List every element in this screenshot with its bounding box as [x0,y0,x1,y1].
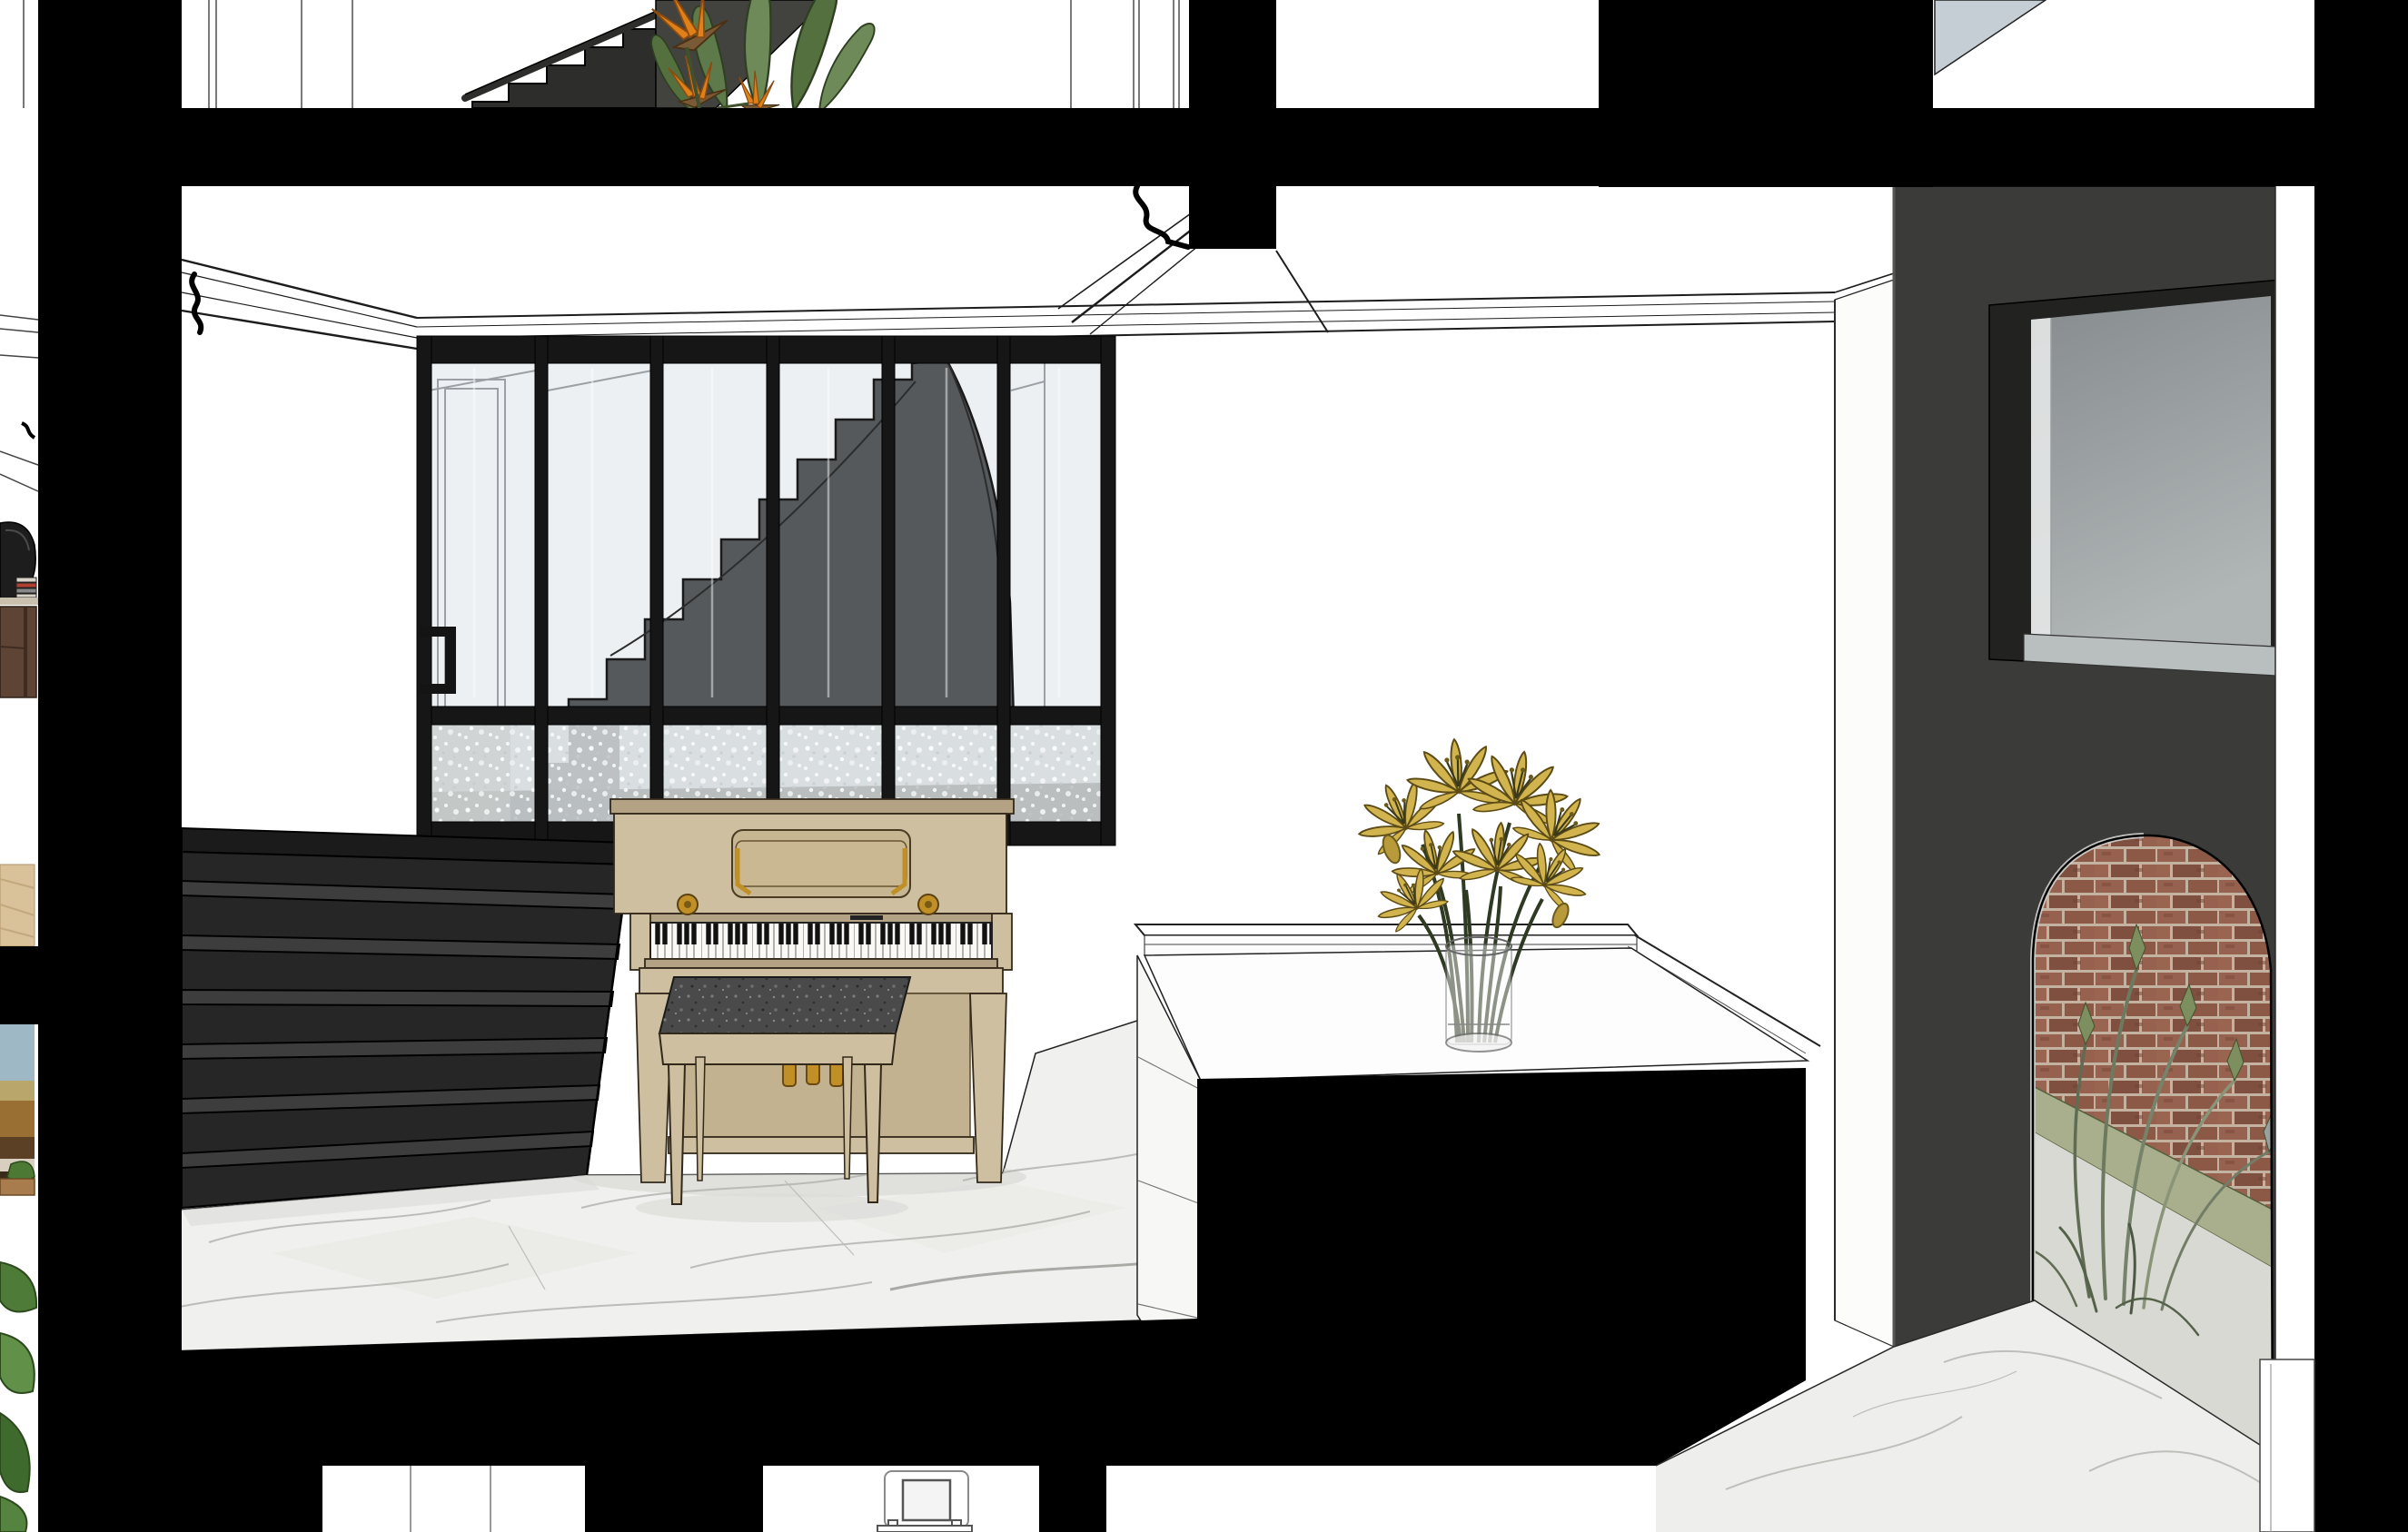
architectural-section-render [0,0,2408,1532]
lower-room [322,1466,1656,1532]
right-wall-return [1835,280,1894,1347]
landscape-painting [0,1024,35,1181]
flower-vase [1446,937,1511,1052]
pilaster [2275,186,2314,1532]
piano-keys [650,923,992,959]
section-render-canvas [0,0,2408,1532]
wood-floor-sliver [0,865,35,946]
interior-window [1989,280,2282,676]
wood-sideboard [0,607,36,697]
black-staircase [182,828,629,1208]
wall-switch-plate[interactable] [885,1471,968,1527]
left-edge-slivers [0,0,38,1532]
pilaster-plinth [2260,1359,2314,1532]
